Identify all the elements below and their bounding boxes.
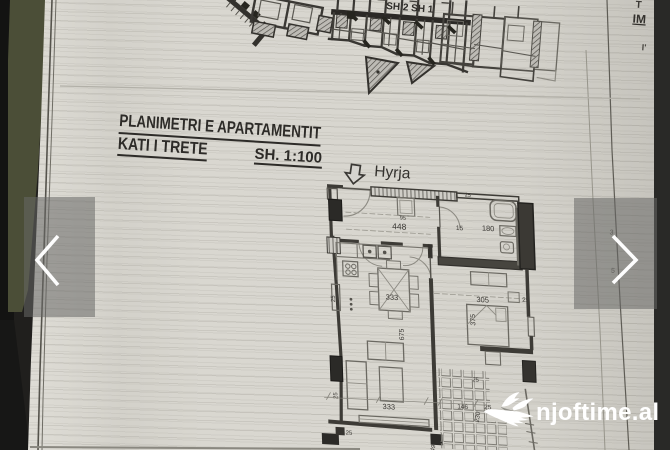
svg-text:25: 25 [346,430,354,436]
svg-text:25: 25 [465,193,471,199]
svg-text:25: 25 [472,377,480,383]
svg-text:IM: IM [632,12,646,27]
svg-text:15: 15 [456,225,464,232]
svg-text:25: 25 [331,295,337,303]
svg-text:448: 448 [392,221,407,232]
svg-text:375: 375 [470,314,477,326]
svg-text:Hyrja: Hyrja [374,163,412,183]
svg-text:T: T [635,0,642,11]
svg-text:305: 305 [476,295,489,305]
svg-text:I': I' [641,42,646,52]
svg-text:333: 333 [382,402,395,412]
svg-text:180: 180 [482,223,495,233]
svg-text:333: 333 [386,292,399,302]
svg-text:SH 2 SH 1: SH 2 SH 1 [386,1,434,16]
svg-text:675: 675 [399,328,406,340]
